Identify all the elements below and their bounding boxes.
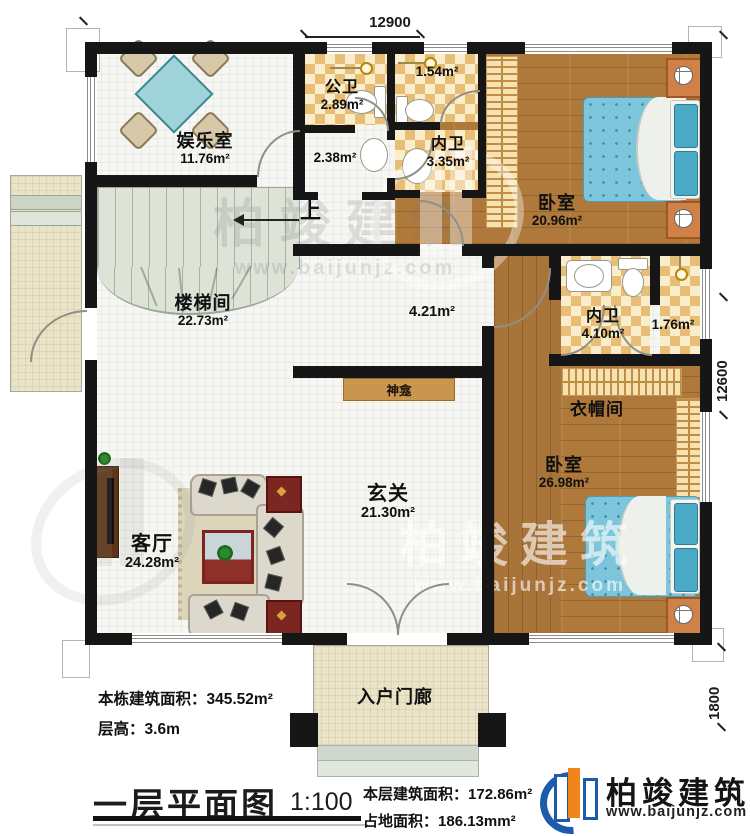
ceiling-light-icon [675,268,688,281]
room-name: 入户门廊 [357,687,433,707]
room-label-ensuite-mid: 内卫 4.10m² [563,308,643,341]
room-area: 4.10m² [582,326,625,341]
wall [482,378,494,645]
room-area: 26.98m² [539,475,589,490]
logo-building-bar-icon [583,778,598,820]
wall [462,244,712,256]
porch-column [290,713,318,747]
pier-bottom-left [62,640,90,678]
wall [482,256,494,268]
floor-height-value: 3.6m [145,721,180,738]
floor-area-label: 本层建筑面积： [363,786,468,803]
room-label-porch: 入户门廊 [335,687,455,707]
room-area: 3.35m² [427,154,470,169]
brand-website: www.baijunjz.com [606,804,747,820]
room-label-ensuite-top: 内卫 3.35m² [408,136,488,169]
room-label-foyer: 玄关 21.30m² [338,483,438,522]
pillow [674,548,698,592]
plan-scale: 1:100 [290,788,353,817]
wall [650,256,660,305]
dimension-tick [79,16,88,25]
building-area-line: 本栋建筑面积：345.52m² [98,687,273,709]
wall [293,192,318,200]
room-name: 内卫 [431,136,465,154]
site-area-label: 占地面积： [363,813,438,830]
window [523,42,674,54]
porch-column [478,713,506,747]
dimension-top: 12900 [330,14,450,31]
title-underline-thin [93,824,368,826]
room-area: 2.89m² [321,97,364,112]
brand-logo-icon [538,766,602,830]
room-area: 11.76m² [180,151,230,166]
room-label-wc-small: 1.54m² [397,64,477,79]
cushion [221,477,239,495]
room-area: 24.28m² [125,555,179,571]
room-name: 娱乐室 [177,131,234,151]
room-label-bedroom-bottom: 卧室 26.98m² [514,455,614,490]
room-area: 20.96m² [532,213,582,228]
room-label-living: 客厅 24.28m² [102,533,202,572]
title-underline [93,816,361,821]
toilet-bowl [405,99,434,122]
dimension-right: 12600 [714,322,731,402]
room-area: 22.73m² [178,313,228,328]
room-name: 衣帽间 [570,400,624,419]
end-table [266,600,302,637]
dimension-tick [719,292,728,301]
window [85,75,97,164]
room-label-stairwell: 楼梯间 22.73m² [143,293,263,328]
terrace-step [10,211,82,226]
wall [549,354,712,366]
wall [395,122,440,130]
room-label-cloakroom: 衣帽间 [547,400,647,419]
room-area: 21.30m² [361,505,415,521]
room-label-bedroom-top: 卧室 20.96m² [507,193,607,228]
sink-basin [574,264,604,288]
light-cord [330,67,362,69]
site-area-line: 占地面积：186.13mm² [363,810,516,831]
site-area-value: 186.13mm² [438,813,516,830]
dimension-porch: 1800 [706,660,723,720]
building-area-value: 345.52m² [207,691,273,708]
logo-building-bar-icon [568,768,580,818]
wall [362,192,395,200]
room-name: 卧室 [545,455,583,475]
room-name: 楼梯间 [175,293,232,313]
room-area: 1.54m² [416,64,459,79]
toilet-bowl [622,268,644,297]
terrace-step [10,195,82,210]
room-name: 客厅 [131,533,173,555]
pillow [674,104,698,148]
window [422,42,469,54]
stair-direction-line [243,219,299,221]
wall [700,54,712,645]
ceiling-light-icon [360,62,373,75]
porch-step [317,760,479,777]
wall [85,175,257,187]
stair-up-label: 上 [296,200,326,224]
floor-height-line: 层高：3.6m [98,717,180,739]
window [325,42,374,54]
pillow [674,503,698,545]
wall [462,190,486,198]
floor-area-line: 本层建筑面积：172.86m² [363,783,532,804]
room-name: 公卫 [325,79,359,97]
dimension-tick [719,410,728,419]
room-name: 玄关 [367,483,409,505]
room-label-bath-mid: 1.76m² [633,317,713,332]
room-label-entertainment: 娱乐室 11.76m² [145,131,265,166]
room-name: 内卫 [586,308,620,326]
lamp [674,66,693,85]
stair-arrow-icon [233,214,244,226]
wall [305,125,355,133]
room-label-public-bath: 公卫 2.89m² [292,79,392,112]
floor-plan-canvas: 上 神龛 [0,0,750,836]
room-label-hallway: 4.21m² [392,304,472,320]
window [130,633,284,645]
building-area-label: 本栋建筑面积： [98,691,207,708]
room-area: 4.21m² [409,304,455,320]
dimension-line [305,36,420,38]
room-name: 卧室 [538,193,576,213]
bed-duvet [618,496,666,595]
floor-height-label: 层高： [98,721,145,738]
shrine-shelf: 神龛 [343,378,455,401]
room-area: 2.38m² [314,150,357,165]
staircase [97,187,300,269]
floor-area-value: 172.86m² [468,786,532,803]
dimension-tick [717,722,726,731]
wall [549,256,561,300]
room-area: 1.76m² [652,317,695,332]
cloakroom-rack [562,368,682,396]
wall [293,244,420,256]
window [700,410,712,504]
end-table [266,476,302,513]
lamp [674,605,693,624]
wall [395,190,420,198]
window [527,633,676,645]
plant [216,544,234,562]
wall [293,366,494,378]
stair-up-text: 上 [300,200,322,224]
shrine-label: 神龛 [386,380,411,399]
pillow [674,151,698,196]
room-label-hall-small: 2.38m² [295,150,375,165]
lamp [674,209,693,228]
